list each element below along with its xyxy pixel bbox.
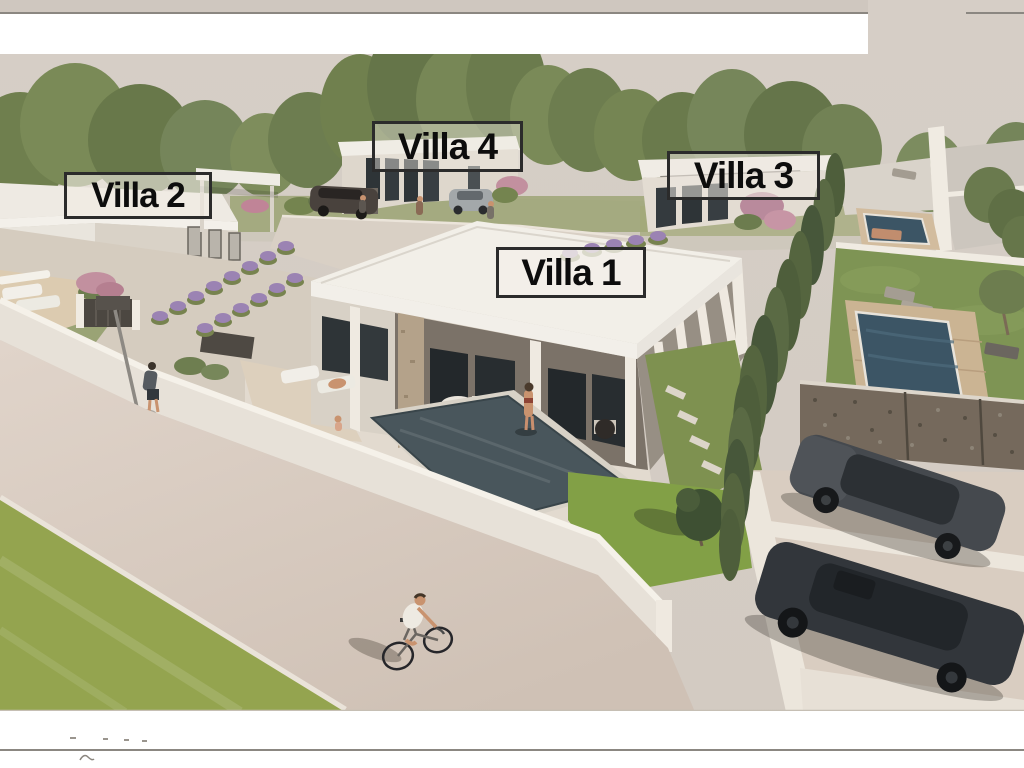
pink-bush	[96, 282, 124, 298]
lavender	[233, 303, 249, 313]
villa-1-label: Villa 1	[496, 247, 646, 298]
stone	[823, 423, 827, 427]
cypress	[719, 509, 741, 581]
stone	[870, 428, 874, 432]
shrub	[201, 364, 229, 380]
villa1-window	[358, 323, 388, 381]
villa1-pillar	[350, 306, 360, 432]
gate-post	[76, 294, 84, 328]
child-body	[335, 422, 342, 431]
top-border-line-right	[966, 12, 1024, 14]
villa-3-label: Villa 3	[667, 151, 820, 200]
gate-post	[132, 300, 140, 330]
stone	[970, 446, 974, 450]
villa1-window	[322, 316, 352, 374]
silver-car	[449, 189, 493, 215]
person-shorts	[147, 389, 159, 400]
stone	[936, 408, 940, 412]
scan-artifact	[103, 738, 108, 740]
lavender	[251, 293, 267, 303]
stone	[878, 440, 882, 444]
top-beige-strip	[0, 0, 868, 13]
top-border-line	[0, 12, 868, 14]
silver-car-windows	[457, 191, 483, 200]
lavender	[188, 291, 204, 301]
pink-flowers	[241, 199, 269, 213]
person-leg	[526, 416, 527, 430]
stone	[888, 410, 892, 414]
lavender	[260, 251, 276, 261]
scan-artifact	[124, 739, 129, 741]
sphere-lamp	[595, 419, 615, 439]
scan-artifact	[70, 737, 76, 739]
person-body	[416, 201, 423, 215]
real-estate-render-page: Villa 2 Villa 4 Villa 3 Villa 1	[0, 0, 1024, 768]
stone-speckle	[401, 330, 405, 333]
lawn-highlight	[840, 266, 920, 294]
swimsuit	[524, 398, 533, 403]
stone	[998, 413, 1002, 417]
bottom-border-line	[0, 749, 1024, 751]
stone	[918, 423, 922, 427]
stone-speckle	[404, 395, 408, 398]
person-body	[359, 200, 366, 213]
lavender	[170, 301, 186, 311]
stone	[1010, 450, 1014, 454]
bougainvillea	[764, 210, 796, 230]
lavender	[242, 261, 258, 271]
shrub	[492, 187, 518, 203]
stone-speckle	[410, 360, 415, 363]
villa2-window	[188, 227, 201, 256]
lavender	[269, 283, 285, 293]
stone	[833, 413, 837, 417]
child-head	[335, 416, 342, 423]
villa2-window	[209, 230, 221, 258]
scan-artifact	[142, 740, 147, 742]
person-body	[524, 390, 533, 417]
lavender	[215, 313, 231, 323]
stone	[846, 436, 850, 440]
render-scene	[0, 0, 1024, 768]
villa1-pillar	[625, 356, 636, 466]
person-leg	[156, 399, 158, 412]
villa-2-label: Villa 2	[64, 172, 212, 219]
stone	[943, 438, 947, 442]
lavender	[628, 235, 644, 245]
lavender	[152, 311, 168, 321]
scan-squiggle	[80, 756, 94, 760]
lavender	[278, 241, 294, 251]
street-lamp-head	[96, 296, 130, 310]
wheel	[454, 206, 463, 215]
stone	[910, 443, 914, 447]
stone	[993, 433, 997, 437]
person-head	[525, 383, 534, 392]
photo	[0, 0, 1024, 715]
stone	[813, 398, 817, 402]
person-head	[148, 362, 156, 370]
lavender	[197, 323, 213, 333]
wheel	[479, 206, 488, 215]
stone	[853, 400, 857, 404]
villa-4-label: Villa 4	[372, 121, 523, 172]
villa2-window	[229, 233, 240, 260]
scan-artifacts	[70, 737, 147, 760]
tree	[676, 488, 700, 512]
lavender	[287, 273, 303, 283]
lavender	[650, 231, 666, 241]
shrub	[734, 214, 762, 230]
stone	[963, 416, 967, 420]
lavender	[206, 281, 222, 291]
person-body	[487, 206, 494, 219]
person-leg	[532, 416, 533, 430]
lavender	[224, 271, 240, 281]
